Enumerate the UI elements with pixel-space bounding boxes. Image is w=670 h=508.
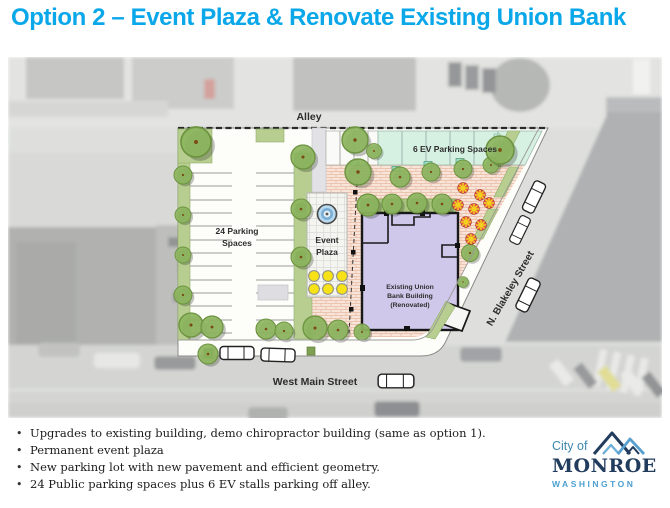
slide-title: Option 2 – Event Plaza & Renovate Existi… bbox=[11, 4, 661, 32]
logo-washington-text: WASHINGTON bbox=[552, 479, 662, 489]
site-plan-map: Alley 6 EV Parking Spaces 24 Parking Spa… bbox=[8, 57, 662, 418]
bullet-item: Permanent event plaza bbox=[14, 444, 524, 458]
bullet-list: Upgrades to existing building, demo chir… bbox=[14, 427, 524, 495]
ev-parking-label: 6 EV Parking Spaces bbox=[413, 144, 497, 154]
west-main-label: West Main Street bbox=[273, 376, 358, 388]
bullet-item: Upgrades to existing building, demo chir… bbox=[14, 427, 524, 441]
alley-label: Alley bbox=[296, 111, 321, 123]
event-plaza-label-1: Event bbox=[315, 235, 338, 245]
city-of-monroe-logo: City of MONROE WASHINGTON bbox=[552, 428, 662, 489]
building-label-2: Bank Building bbox=[387, 293, 433, 300]
slide: Option 2 – Event Plaza & Renovate Existi… bbox=[0, 0, 670, 508]
logo-monroe-text: MONROE bbox=[552, 456, 662, 477]
site-plan-svg: Alley 6 EV Parking Spaces 24 Parking Spa… bbox=[8, 57, 662, 418]
bullet-item: New parking lot with new pavement and ef… bbox=[14, 461, 524, 475]
union-bank-building bbox=[360, 210, 470, 331]
parking-count-label-1: 24 Parking bbox=[216, 226, 259, 236]
building-label-3: (Renovated) bbox=[390, 302, 429, 309]
mountain-icon bbox=[591, 428, 649, 456]
bullet-item: 24 Public parking spaces plus 6 EV stall… bbox=[14, 478, 524, 492]
event-plaza-label-2: Plaza bbox=[316, 247, 338, 257]
parking-count-label-2: Spaces bbox=[222, 238, 252, 248]
logo-city-of-text: City of bbox=[552, 439, 587, 456]
building-label-1: Existing Union bbox=[386, 284, 434, 291]
fountain bbox=[318, 205, 337, 224]
